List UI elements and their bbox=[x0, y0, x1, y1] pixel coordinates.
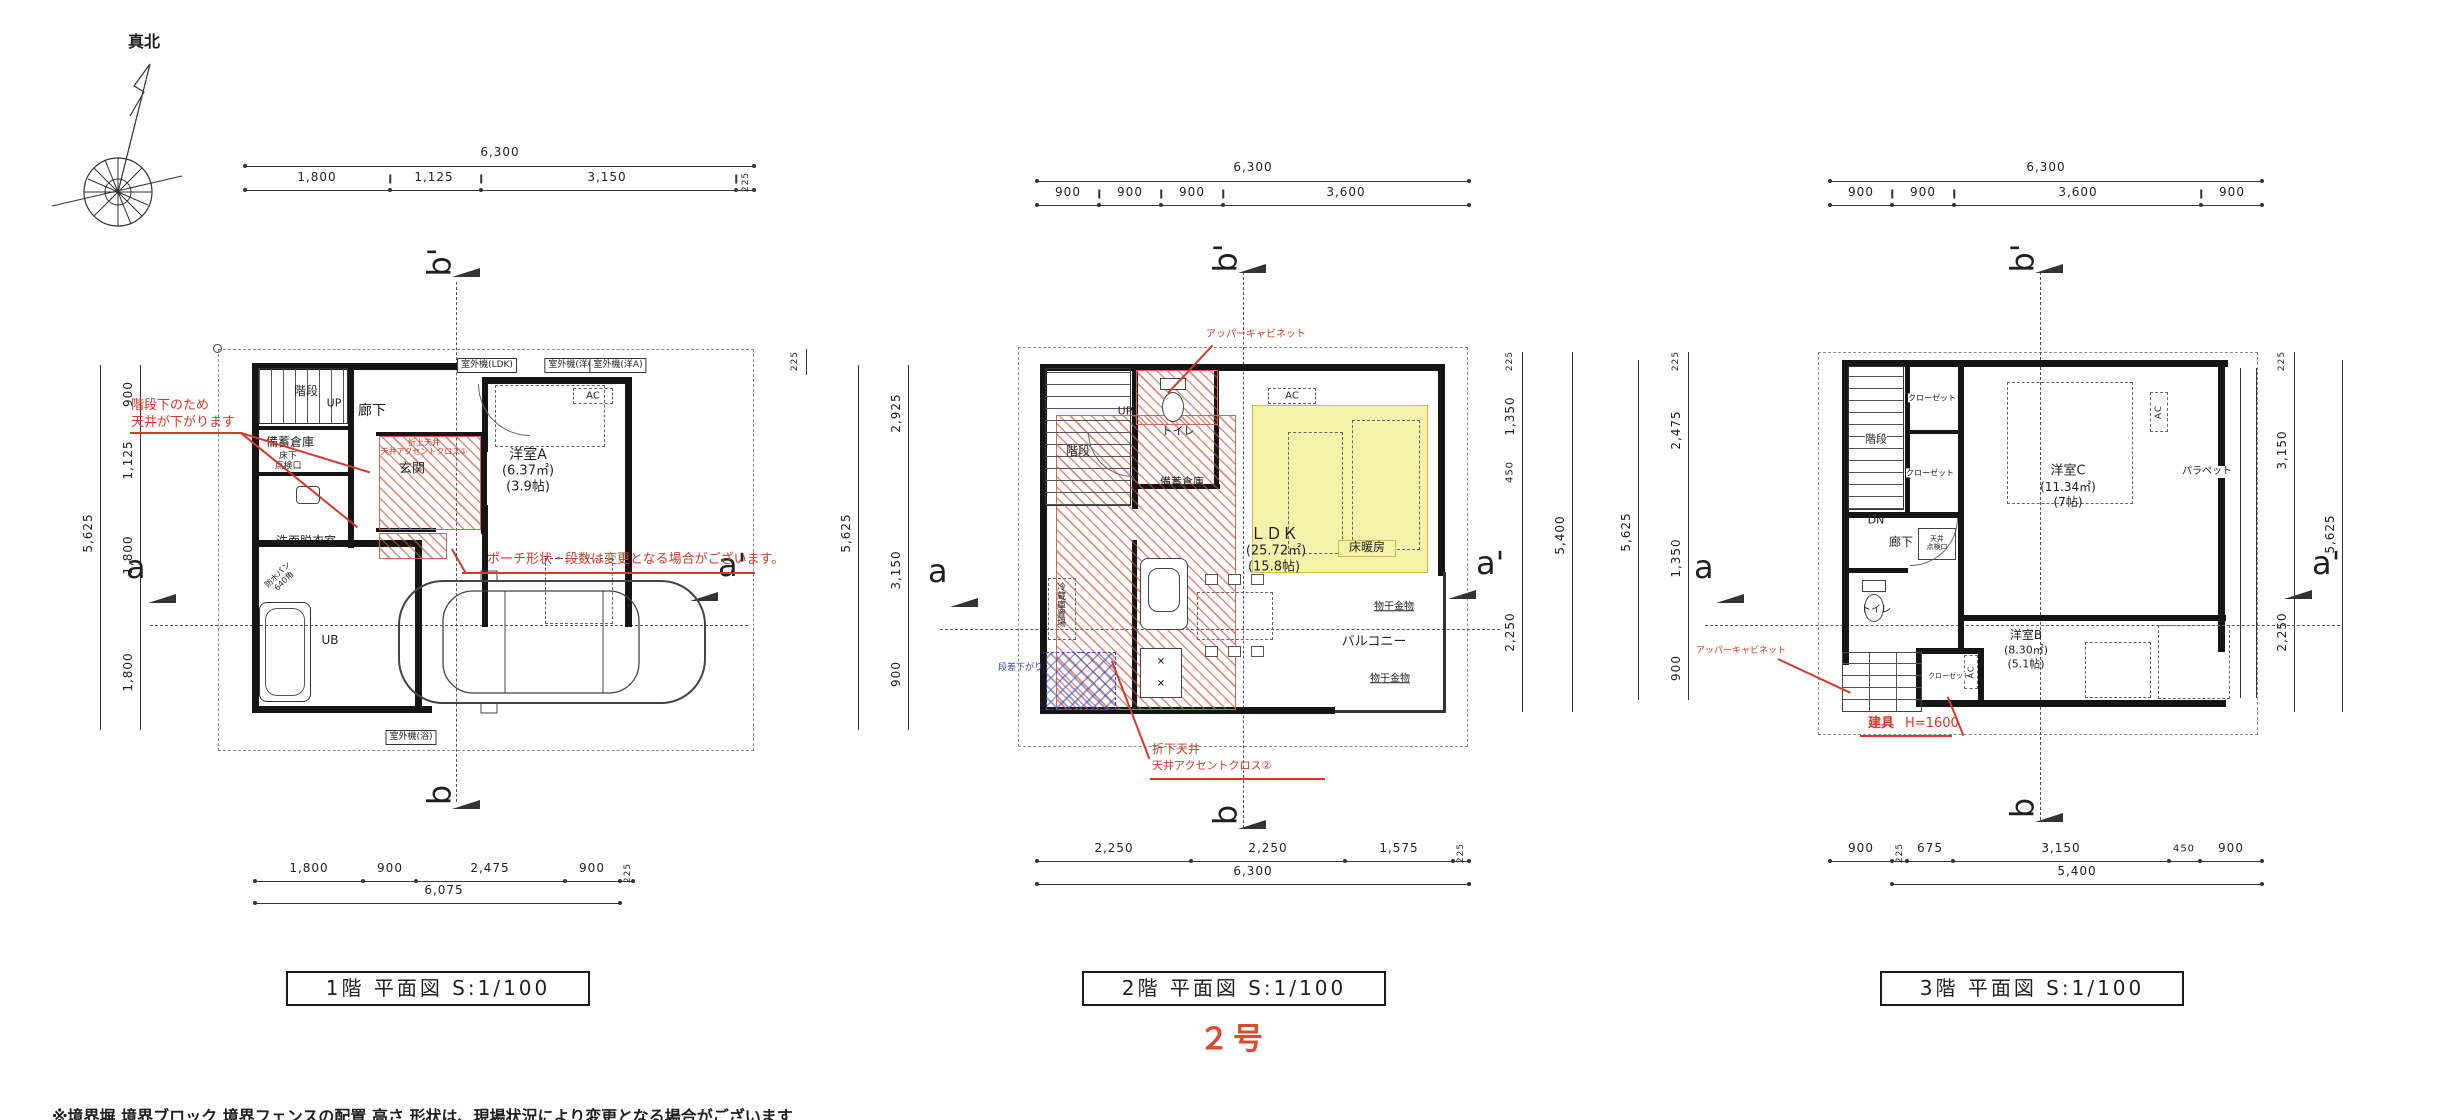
dim-line bbox=[1688, 352, 1689, 700]
dim-line bbox=[1892, 884, 2262, 885]
dim-line bbox=[1638, 360, 1639, 700]
section-marker-a-prime: a' bbox=[2312, 544, 2340, 582]
dim-label: 900 bbox=[1669, 655, 1683, 681]
fitting-note: 建具 bbox=[1868, 716, 1894, 732]
dim-label: 2,475 bbox=[1669, 410, 1683, 449]
section-flag bbox=[2035, 813, 2063, 822]
dim-line bbox=[1830, 181, 2262, 182]
dim-line bbox=[2294, 352, 2295, 712]
ac-label: AC bbox=[2154, 405, 2164, 419]
footer-note: ※境界塀 境界ブロック 境界フェンスの配置 高さ 形状は、現場状況により変更とな… bbox=[52, 1107, 793, 1120]
dim-label: 900 bbox=[1910, 186, 1936, 200]
furniture-dashed-outline bbox=[2158, 625, 2230, 699]
dim-label: 225 bbox=[1671, 351, 1681, 371]
room-b-label: 洋室B bbox=[2010, 629, 2042, 643]
dim-label: 900 bbox=[2218, 842, 2244, 856]
toilet-label: トイレ bbox=[1861, 604, 1891, 616]
section-line-a bbox=[1705, 625, 2340, 626]
fitting-height-note: H=1600 bbox=[1905, 716, 1959, 732]
closet-upper-label: クローゼット bbox=[1908, 393, 1956, 402]
dim-label: 3,150 bbox=[2041, 842, 2080, 856]
parapet-line bbox=[2256, 368, 2257, 698]
hallway-label: 廊下 bbox=[1889, 536, 1913, 550]
section-flag bbox=[1716, 594, 1744, 603]
section-flag bbox=[2284, 590, 2312, 599]
room-c-label: 洋室C bbox=[2050, 465, 2085, 480]
dim-label: 1,350 bbox=[1669, 538, 1683, 577]
dn-label: DN bbox=[1868, 515, 1885, 528]
dim-label: 225 bbox=[1895, 843, 1905, 863]
section-flag bbox=[2035, 264, 2063, 273]
dim-label: 225 bbox=[2277, 351, 2287, 371]
floor3-plan: 6,300 900 900 3,600 900 900 225 675 3,15… bbox=[0, 0, 2462, 1120]
dim-line bbox=[2342, 360, 2343, 712]
dim-label: 3,600 bbox=[2058, 186, 2097, 200]
dim-label: 900 bbox=[1848, 842, 1874, 856]
stairs-label: 階段 bbox=[1865, 434, 1887, 447]
dim-label: 900 bbox=[2219, 186, 2245, 200]
dim-label: 900 bbox=[1848, 186, 1874, 200]
bed-dashed-outline bbox=[2085, 642, 2151, 698]
dim-label: 450 bbox=[2173, 843, 2195, 855]
dim-line bbox=[1830, 205, 2262, 206]
toilet-tank bbox=[1862, 580, 1886, 592]
room-b-area: (8.30㎡) bbox=[2004, 645, 2048, 658]
room-b-tatami: (5.1帖) bbox=[2007, 659, 2044, 672]
closet-bottom-label: クローゼット bbox=[1928, 672, 1970, 680]
room-c-area: (11.34㎡) bbox=[2040, 481, 2096, 495]
dim-label: 675 bbox=[1917, 842, 1943, 856]
dim-label: 3,150 bbox=[2275, 430, 2289, 469]
parapet-line bbox=[2240, 368, 2241, 698]
upper-cabinet-note: アッパーキャビネット bbox=[1696, 646, 1786, 657]
leader-line bbox=[1860, 735, 1952, 737]
dim-label: 2,250 bbox=[2275, 612, 2289, 651]
section-line-b bbox=[2040, 272, 2041, 820]
room-c-tatami: (7帖) bbox=[2054, 496, 2083, 510]
closet-lower-label: クローゼット bbox=[1906, 468, 1954, 477]
floorplan-sheet: 真北 6,300 1,800 1,125 3,150 225 1,800 900… bbox=[0, 0, 2462, 1120]
porch-roof-brick bbox=[1842, 652, 1922, 712]
parapet-label: パラペット bbox=[2182, 466, 2232, 478]
dim-label: 5,400 bbox=[2057, 865, 2096, 879]
ceiling-access-label: 天井点検口 bbox=[1927, 535, 1948, 551]
ac-label: AC bbox=[1967, 666, 1976, 679]
section-marker-a: a bbox=[1694, 548, 1714, 586]
dim-label: 6,300 bbox=[2026, 161, 2065, 175]
floor3-caption: 3階 平面図 S:1/100 bbox=[1880, 971, 2184, 1006]
dim-label: 5,625 bbox=[1619, 512, 1633, 551]
